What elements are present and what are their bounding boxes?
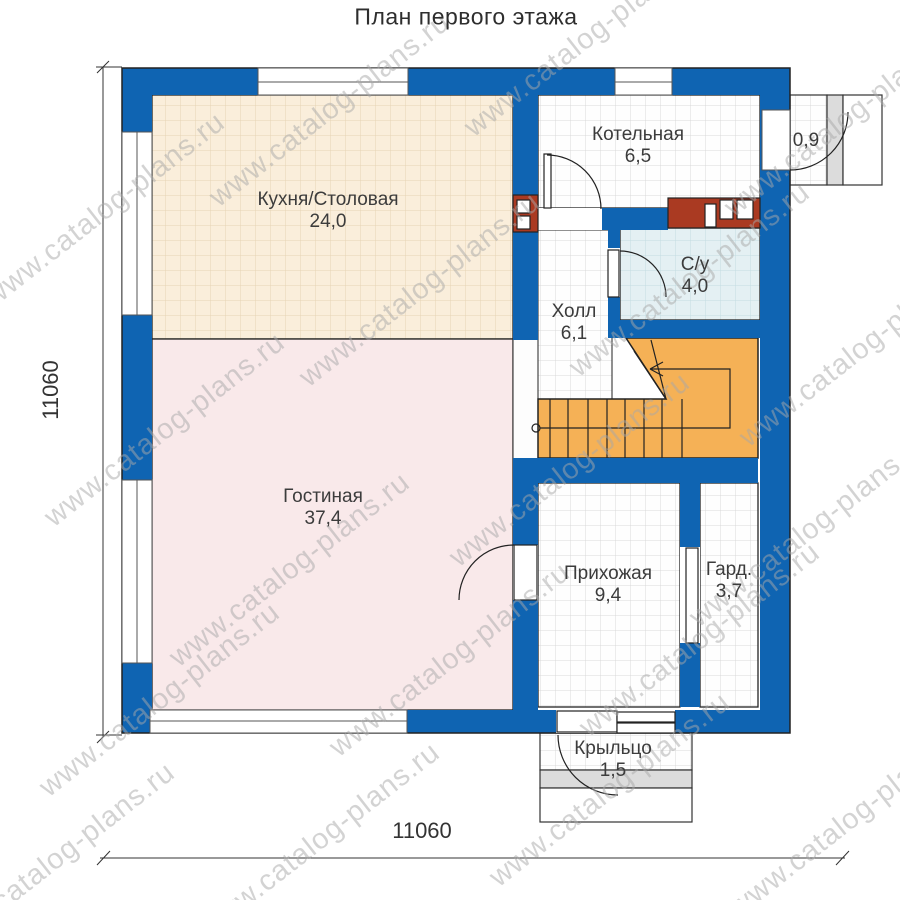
dimension-bottom-value: 11060 [392,818,452,844]
room-area: 6,5 [592,146,684,168]
dimension-left-value: 11060 [38,360,64,420]
room-name: С/у [681,254,710,276]
room-label-living: Гостиная 37,4 [283,486,363,530]
room-name: Кухня/Столовая [257,189,398,211]
room-area: 3,7 [706,581,752,603]
wall-boiler-hall [602,208,668,230]
room-area: 4,0 [681,276,710,298]
room-area: 1,5 [574,760,652,782]
door-leaf-living [514,545,537,600]
room-area: 9,4 [564,585,652,607]
floor-plan-drawing [0,0,900,900]
room-area: 37,4 [283,508,363,530]
room-label-hall: Холл 6,1 [552,301,597,345]
room-label-entry-hall: Прихожая 9,4 [564,563,652,607]
room-name: Прихожая [564,563,652,585]
room-label-boiler: Котельная 6,5 [592,124,684,168]
page-title: План первого этажа [354,4,577,31]
room-area: 6,1 [552,323,597,345]
room-label-side-entry: 0,9 [793,130,819,152]
room-label-bathroom: С/у 4,0 [681,254,710,298]
room-label-wardrobe: Гард. 3,7 [706,559,752,603]
room-label-porch: Крыльцо 1,5 [574,738,652,782]
room-area: 24,0 [257,211,398,233]
hall-passage-floor [513,339,538,460]
door-leaf-boiler [544,154,551,208]
door-leaf-entrance-a [557,711,617,732]
room-name: Котельная [592,124,684,146]
wall-bathroom-bottom [608,320,760,338]
room-label-kitchen: Кухня/Столовая 24,0 [257,189,398,233]
room-area: 0,9 [793,130,819,152]
room-name: Гард. [706,559,752,581]
room-name: Гостиная [283,486,363,508]
door-leaf-bathroom [608,250,619,297]
room-name: Крыльцо [574,738,652,760]
door-leaf-entrance-c [617,723,675,733]
room-name: Холл [552,301,597,323]
wall-top [122,68,790,95]
door-leaf-entrance-b [617,712,675,722]
dim-line-left [96,67,122,737]
wall-stairs-entry [513,458,758,483]
floor-plan-page: www.catalog-plans.ru www.catalog-plans.r… [0,0,900,900]
door-leaf-wardrobe [686,548,698,643]
